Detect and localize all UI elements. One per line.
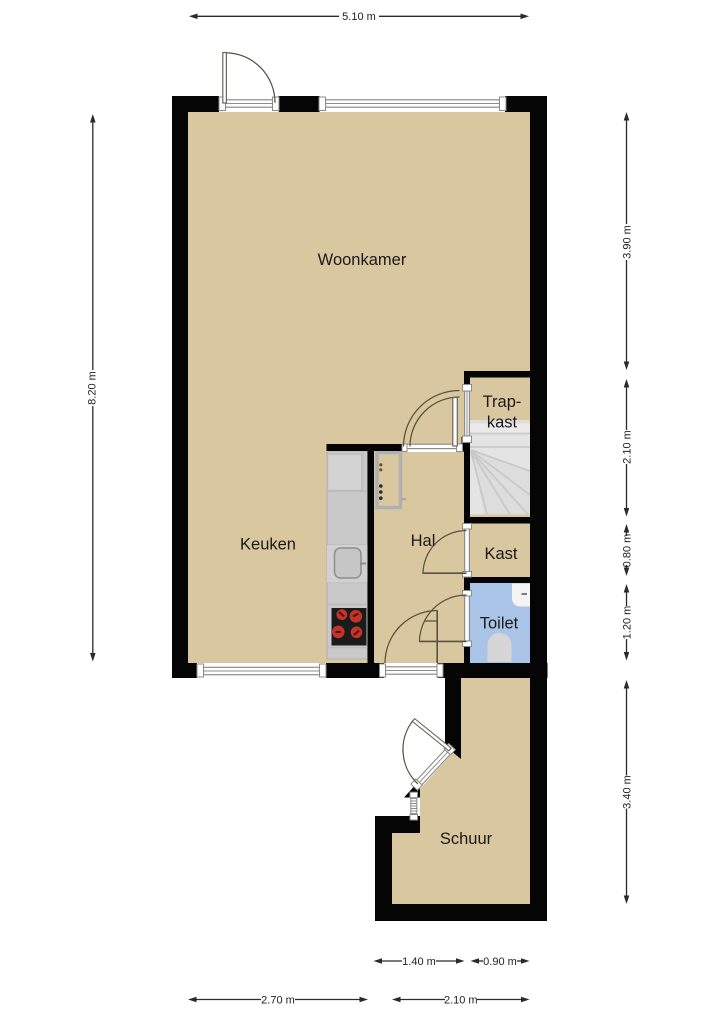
svg-text:Keuken: Keuken (240, 536, 296, 554)
svg-text:2.70 m: 2.70 m (261, 994, 295, 1006)
svg-text:Kast: Kast (484, 545, 517, 563)
svg-text:1.20 m: 1.20 m (621, 606, 633, 640)
svg-text:kast: kast (487, 414, 518, 432)
svg-text:Toilet: Toilet (480, 615, 519, 633)
svg-text:5.10 m: 5.10 m (342, 11, 376, 23)
svg-text:3.90 m: 3.90 m (621, 225, 633, 259)
svg-text:1.40 m: 1.40 m (402, 956, 436, 968)
svg-text:Hal: Hal (411, 532, 436, 550)
svg-text:Schuur: Schuur (440, 830, 493, 848)
svg-text:0.90 m: 0.90 m (483, 956, 517, 968)
svg-text:0.80 m: 0.80 m (621, 534, 633, 568)
svg-text:2.10 m: 2.10 m (621, 430, 633, 464)
svg-text:2.10 m: 2.10 m (444, 994, 478, 1006)
svg-text:Woonkamer: Woonkamer (318, 251, 407, 269)
svg-text:Trap-: Trap- (483, 393, 522, 411)
svg-text:8.20 m: 8.20 m (87, 371, 99, 405)
svg-text:3.40 m: 3.40 m (621, 775, 633, 809)
